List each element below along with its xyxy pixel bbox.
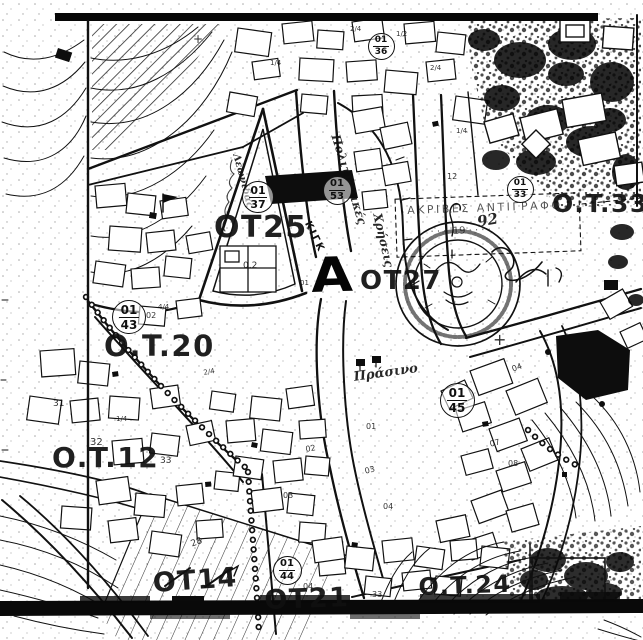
circled-plot-ratio: 0136 <box>368 33 395 60</box>
map-label: OT27 <box>360 268 442 294</box>
map-label: 01 <box>300 280 309 287</box>
map-label: O.T.20 <box>104 332 215 361</box>
circled-plot-ratio: 0133 <box>507 176 534 203</box>
circled-plot-ratio: 0143 <box>112 300 146 334</box>
scanned-cadastral-map-sheet: OT25O.T.33OT27O.T.20O.T.12OT14OT21O.T.24… <box>0 0 643 640</box>
circled-plot-ratio: 0145 <box>440 383 475 418</box>
label-overlay: OT25O.T.33OT27O.T.20O.T.12OT14OT21O.T.24… <box>0 0 643 640</box>
map-label: 33 <box>160 457 171 466</box>
map-label: O.T.24 <box>418 572 512 599</box>
map-label: 4/4 <box>158 304 169 311</box>
map-label: Χρήσεις <box>371 212 395 269</box>
map-label: 08 <box>508 460 518 468</box>
map-label: 2/4 <box>203 368 215 377</box>
map-label: 1/4 <box>456 128 467 135</box>
map-label: 2/4 <box>430 65 441 72</box>
map-label: O.T.33 <box>552 191 643 216</box>
map-label: O.T.12 <box>52 444 159 472</box>
map-label: 03 <box>364 465 376 475</box>
map-label: 92 <box>476 211 499 229</box>
circled-plot-ratio: 0144 <box>273 556 302 585</box>
map-label: 32 <box>90 438 103 448</box>
map-label: Πράσινο <box>353 362 419 384</box>
circled-plot-ratio: 0137 <box>242 181 274 213</box>
map-label: 2/4 <box>350 26 361 33</box>
map-label: 01 <box>366 423 376 431</box>
map-label: OT14 <box>152 564 239 597</box>
map-label: + <box>493 332 506 348</box>
map-label: 0.2 <box>243 262 257 271</box>
map-label: 04 <box>303 583 313 591</box>
zone-marker-a: A <box>310 251 353 300</box>
map-label: 04 <box>511 363 523 374</box>
map-label: 1/2 <box>396 31 407 38</box>
map-label: 1/4 <box>116 416 127 423</box>
map-label: 04 <box>383 503 393 511</box>
map-label: 07 <box>489 438 501 448</box>
map-label: 03 <box>283 492 293 500</box>
map-label: 28 <box>190 537 204 549</box>
map-label: 1/4 <box>270 60 281 67</box>
map-label: 31 <box>53 400 64 409</box>
circled-plot-ratio: 0153 <box>323 176 352 205</box>
map-label: 02 <box>305 444 316 454</box>
map-label: 12 <box>447 173 457 181</box>
map-label: 02 <box>146 312 156 320</box>
map-label: OT25 <box>214 213 308 243</box>
map-label: + <box>193 33 203 45</box>
map-label: 33 <box>372 591 382 599</box>
